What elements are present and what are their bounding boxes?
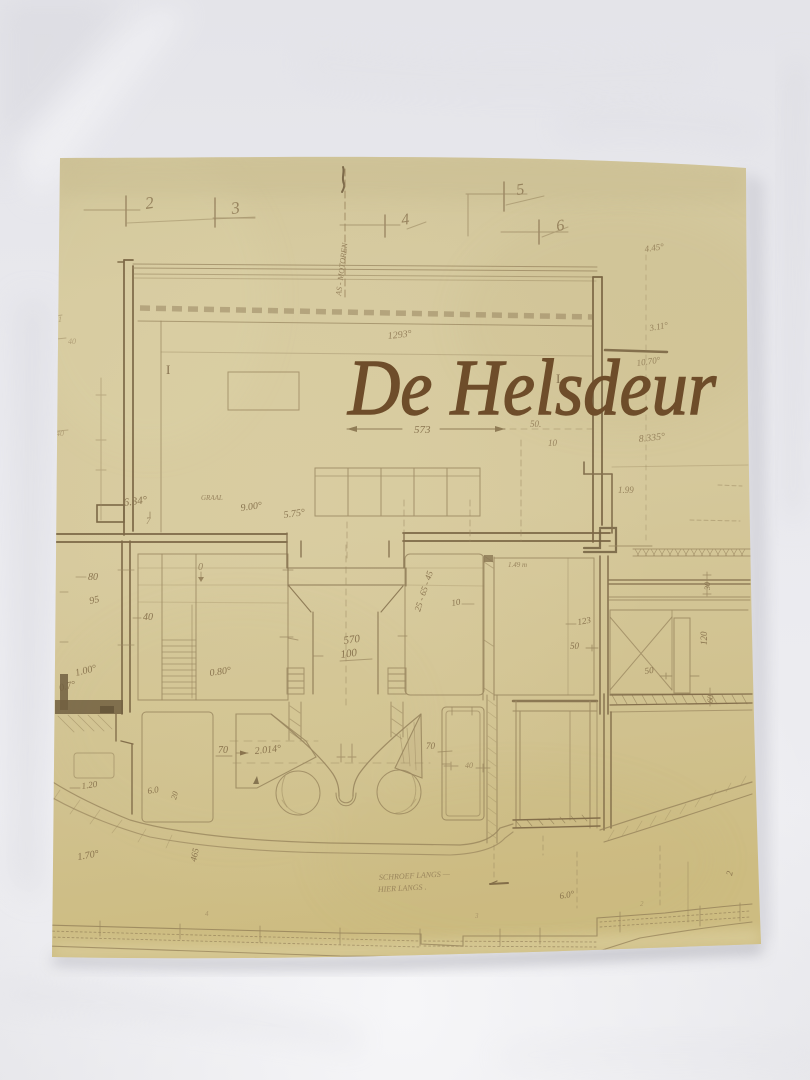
svg-text:40: 40 — [143, 612, 153, 623]
svg-text:6.0: 6.0 — [147, 784, 160, 796]
svg-text:7: 7 — [146, 516, 151, 526]
svg-text:70: 70 — [218, 745, 228, 756]
svg-text:120: 120 — [699, 631, 709, 645]
svg-text:30: 30 — [703, 582, 712, 591]
svg-text:De Helsdeur: De Helsdeur — [347, 345, 716, 432]
svg-text:100: 100 — [340, 647, 359, 661]
svg-text:70: 70 — [426, 741, 436, 751]
svg-text:40: 40 — [68, 337, 76, 346]
svg-text:4: 4 — [205, 910, 209, 918]
svg-text:570: 570 — [343, 633, 362, 647]
svg-text:1.99: 1.99 — [618, 485, 634, 495]
svg-text:3: 3 — [474, 912, 479, 920]
svg-text:1.49 m: 1.49 m — [508, 561, 527, 569]
svg-text:I: I — [166, 362, 170, 377]
svg-text:GRAAL: GRAAL — [201, 494, 223, 502]
svg-text:80: 80 — [88, 572, 98, 583]
svg-text:40: 40 — [465, 761, 473, 770]
svg-text:10: 10 — [548, 438, 558, 448]
svg-text:50: 50 — [570, 641, 580, 651]
svg-text:60: 60 — [706, 695, 715, 703]
svg-text:2: 2 — [640, 900, 644, 908]
